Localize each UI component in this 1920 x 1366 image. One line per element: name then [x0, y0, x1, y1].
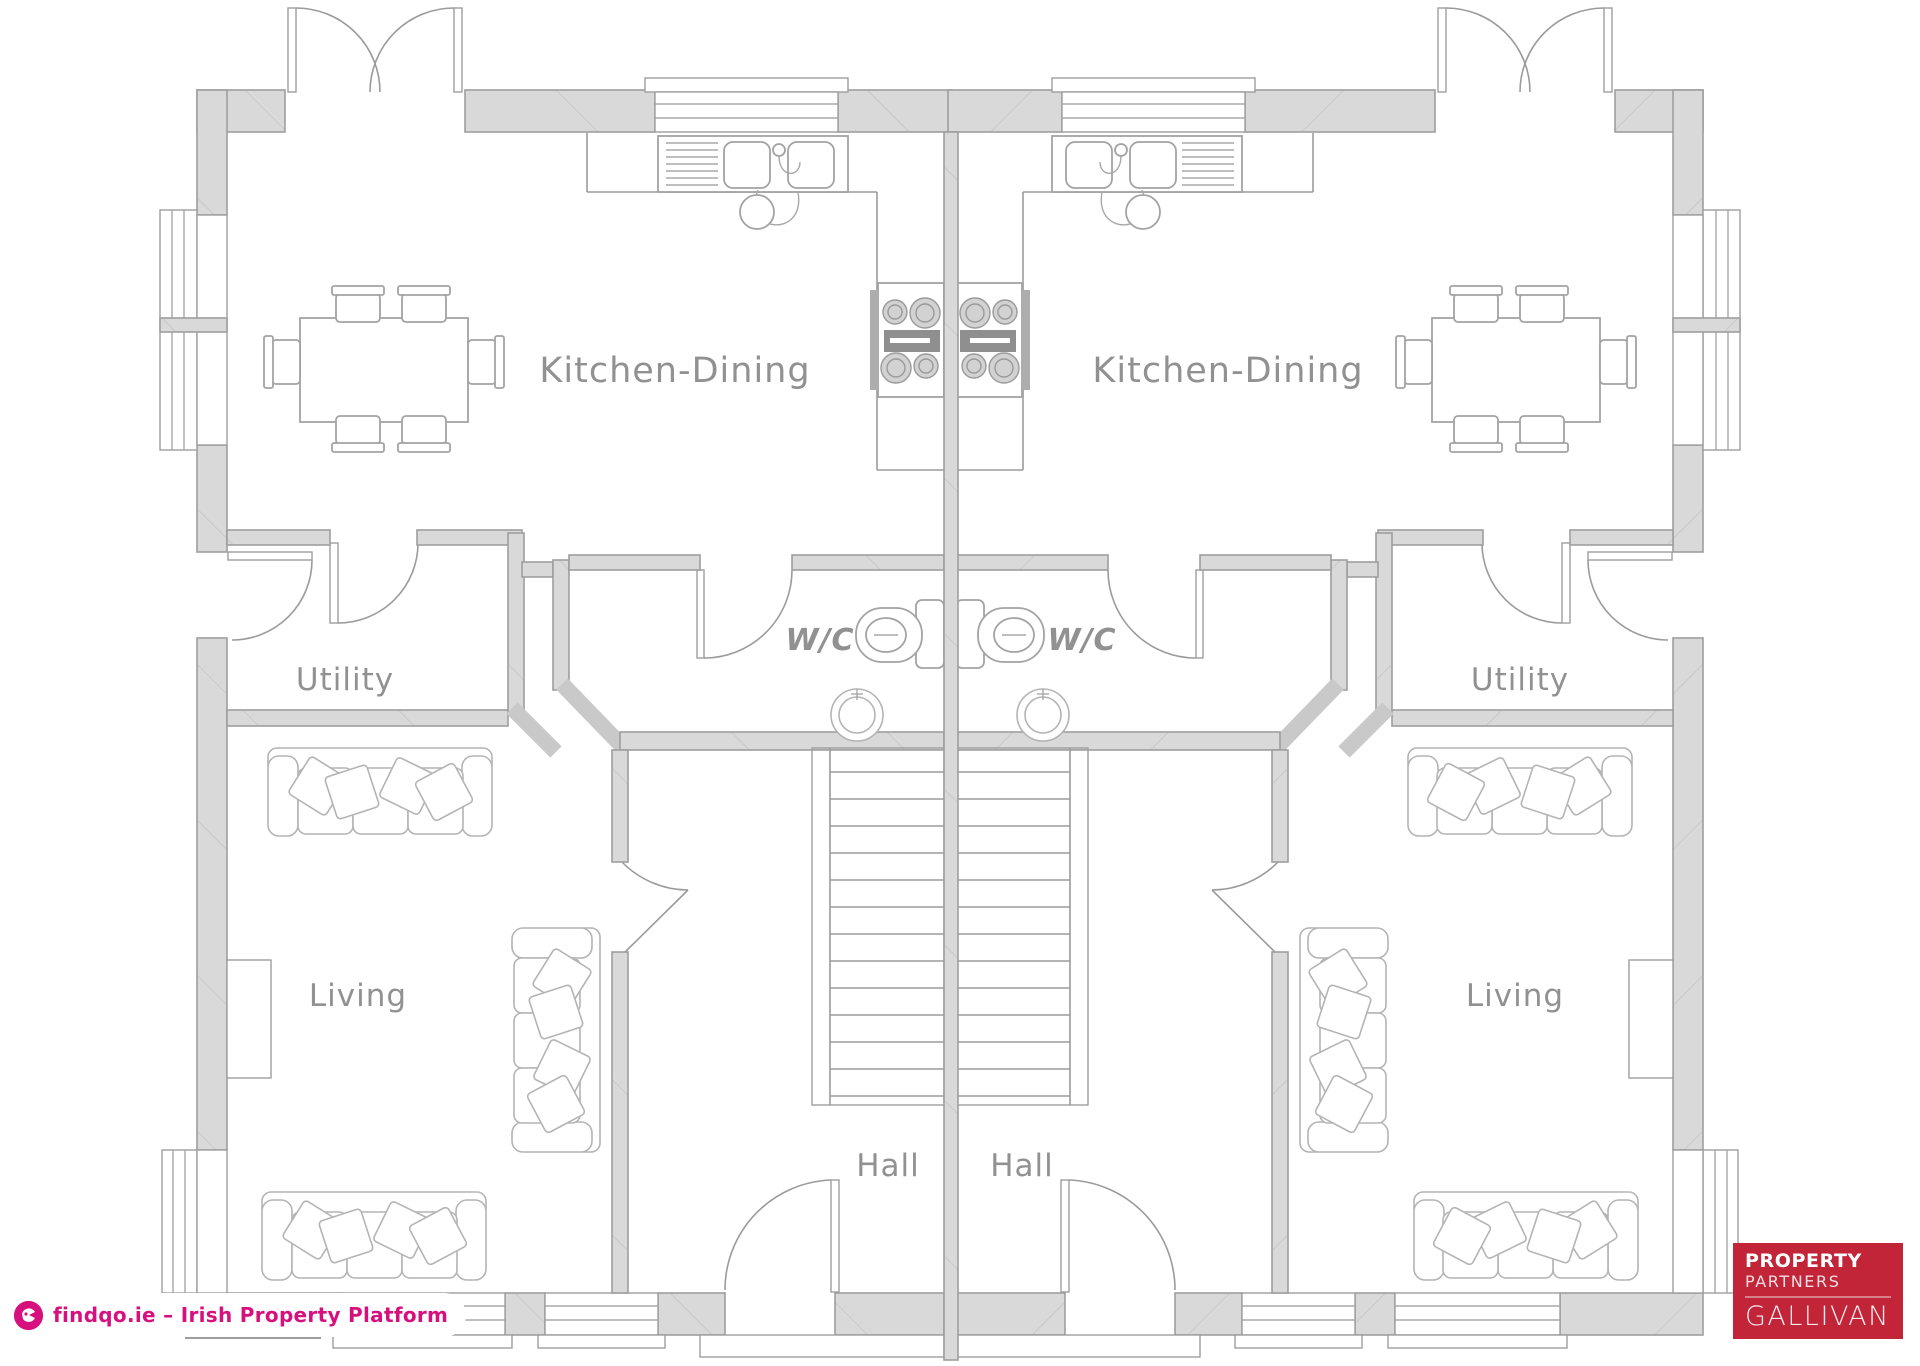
room-label-utility-right: Utility [1471, 662, 1569, 698]
agency-logo: PROPERTY PARTNERS GALLIVAN [1733, 1243, 1903, 1339]
house-right [948, 8, 1740, 1357]
room-label-utility-left: Utility [296, 662, 394, 698]
floor-plan-svg: Kitchen-Dining Kitchen-Dining Utility Ut… [0, 0, 1920, 1362]
room-label-wc-left: W/C [785, 623, 854, 658]
room-label-hall-left: Hall [856, 1148, 920, 1184]
logo-line-gallivan: GALLIVAN [1745, 1301, 1891, 1332]
watermark-underline [185, 1337, 321, 1339]
room-label-wc-right: W/C [1047, 623, 1116, 658]
room-label-hall-right: Hall [990, 1148, 1054, 1184]
logo-line-property: PROPERTY [1745, 1252, 1891, 1272]
findqo-logo-icon [14, 1301, 43, 1330]
floor-plan: Kitchen-Dining Kitchen-Dining Utility Ut… [0, 0, 1920, 1362]
room-label-living-left: Living [309, 978, 407, 1014]
room-label-kitchen-dining-right: Kitchen-Dining [1092, 351, 1363, 391]
room-label-kitchen-dining-left: Kitchen-Dining [539, 351, 810, 391]
watermark-text: findqo.ie – Irish Property Platform [53, 1303, 448, 1327]
party-wall [944, 132, 958, 1360]
watermark: findqo.ie – Irish Property Platform [6, 1293, 466, 1337]
house-left [160, 8, 952, 1357]
logo-divider [1745, 1296, 1891, 1298]
room-label-living-right: Living [1466, 978, 1564, 1014]
logo-line-partners: PARTNERS [1745, 1272, 1891, 1292]
